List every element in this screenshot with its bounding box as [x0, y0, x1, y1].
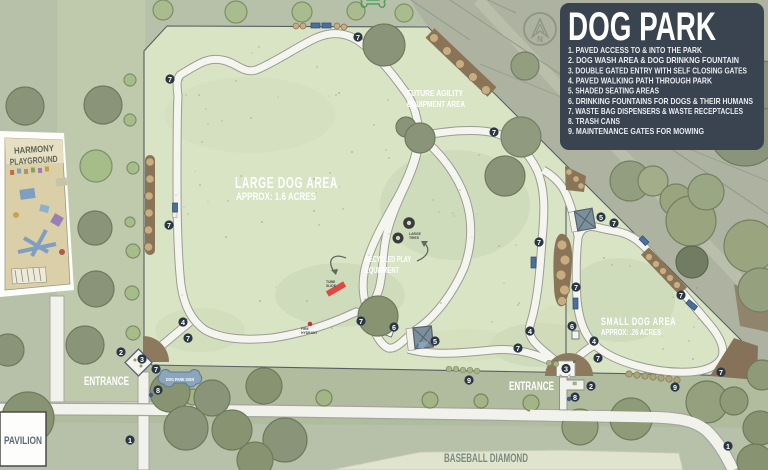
svg-text:1: 1: [726, 442, 730, 451]
svg-text:3. DOUBLE GATED ENTRY WITH SEL: 3. DOUBLE GATED ENTRY WITH SELF CLOSING …: [568, 66, 747, 75]
svg-text:7: 7: [596, 354, 600, 363]
svg-text:7: 7: [574, 283, 578, 292]
svg-text:6: 6: [570, 322, 574, 331]
svg-text:ENTRANCE: ENTRANCE: [84, 374, 129, 388]
svg-text:HYDRANT: HYDRANT: [301, 331, 319, 335]
svg-text:6. DRINKING FOUNTAINS FOR DOGS: 6. DRINKING FOUNTAINS FOR DOGS & THEIR H…: [568, 97, 754, 106]
svg-text:PAVILION: PAVILION: [4, 435, 42, 447]
svg-text:EQUIPMENT AREA: EQUIPMENT AREA: [407, 100, 465, 109]
svg-text:4: 4: [592, 337, 596, 346]
svg-text:SLIDE: SLIDE: [326, 284, 337, 288]
svg-text:7: 7: [492, 128, 496, 137]
svg-text:4: 4: [181, 318, 185, 327]
svg-text:3: 3: [140, 355, 144, 364]
svg-text:7. WASTE BAG DISPENSERS & WAST: 7. WASTE BAG DISPENSERS & WASTE RECEPTAC…: [568, 107, 743, 116]
svg-text:5: 5: [599, 213, 603, 222]
svg-text:3: 3: [564, 365, 568, 374]
svg-text:7: 7: [516, 344, 520, 353]
svg-text:LARGE DOG AREA: LARGE DOG AREA: [235, 175, 338, 192]
svg-text:2: 2: [589, 382, 593, 391]
svg-text:5: 5: [433, 337, 437, 346]
svg-text:2: 2: [119, 348, 123, 357]
svg-text:4. PAVED WALKING PATH THROUGH: 4. PAVED WALKING PATH THROUGH PARK: [568, 77, 712, 86]
svg-text:9: 9: [673, 383, 677, 392]
svg-text:8: 8: [156, 386, 160, 395]
svg-text:EQUIPMENT: EQUIPMENT: [365, 265, 400, 275]
svg-text:APPROX: 1.6 ACRES: APPROX: 1.6 ACRES: [236, 191, 316, 203]
svg-text:TIRES: TIRES: [409, 236, 420, 240]
svg-text:BASEBALL DIAMOND: BASEBALL DIAMOND: [444, 451, 528, 465]
svg-text:SMALL DOG AREA: SMALL DOG AREA: [601, 316, 676, 328]
svg-text:7: 7: [186, 334, 190, 343]
svg-text:9. MAINTENANCE GATES FOR MOWIN: 9. MAINTENANCE GATES FOR MOWING: [568, 127, 704, 136]
svg-text:7: 7: [719, 368, 723, 377]
svg-text:7: 7: [154, 365, 158, 374]
svg-text:FUTURE AGILITY: FUTURE AGILITY: [407, 89, 464, 98]
svg-text:7: 7: [359, 317, 363, 326]
svg-text:5. SHADED SEATING AREAS: 5. SHADED SEATING AREAS: [568, 87, 659, 96]
svg-text:7: 7: [167, 221, 171, 230]
svg-text:1: 1: [128, 436, 132, 445]
svg-text:APPROX: .26 ACRES: APPROX: .26 ACRES: [601, 328, 661, 337]
svg-text:N: N: [537, 35, 543, 44]
svg-text:7: 7: [537, 238, 541, 247]
svg-text:RECYCLED PLAY: RECYCLED PLAY: [365, 254, 411, 264]
svg-text:7: 7: [168, 75, 172, 84]
svg-text:4: 4: [528, 327, 532, 336]
svg-text:8: 8: [573, 393, 577, 402]
svg-text:1. PAVED ACCESS TO & INTO THE: 1. PAVED ACCESS TO & INTO THE PARK: [568, 46, 702, 55]
svg-text:7: 7: [356, 33, 360, 42]
svg-text:9: 9: [467, 376, 471, 385]
svg-text:ENTRANCE: ENTRANCE: [509, 379, 554, 393]
svg-text:2. DOG WASH AREA & DOG DRINKNG: 2. DOG WASH AREA & DOG DRINKNG FOUNTAIN: [568, 56, 739, 65]
svg-text:6: 6: [392, 323, 396, 332]
svg-text:8. TRASH CANS: 8. TRASH CANS: [568, 117, 621, 126]
svg-text:7: 7: [612, 219, 616, 228]
svg-text:7: 7: [679, 291, 683, 300]
svg-text:DOG PARK: DOG PARK: [568, 5, 716, 49]
svg-text:DOG PARK SIGN: DOG PARK SIGN: [166, 377, 194, 382]
